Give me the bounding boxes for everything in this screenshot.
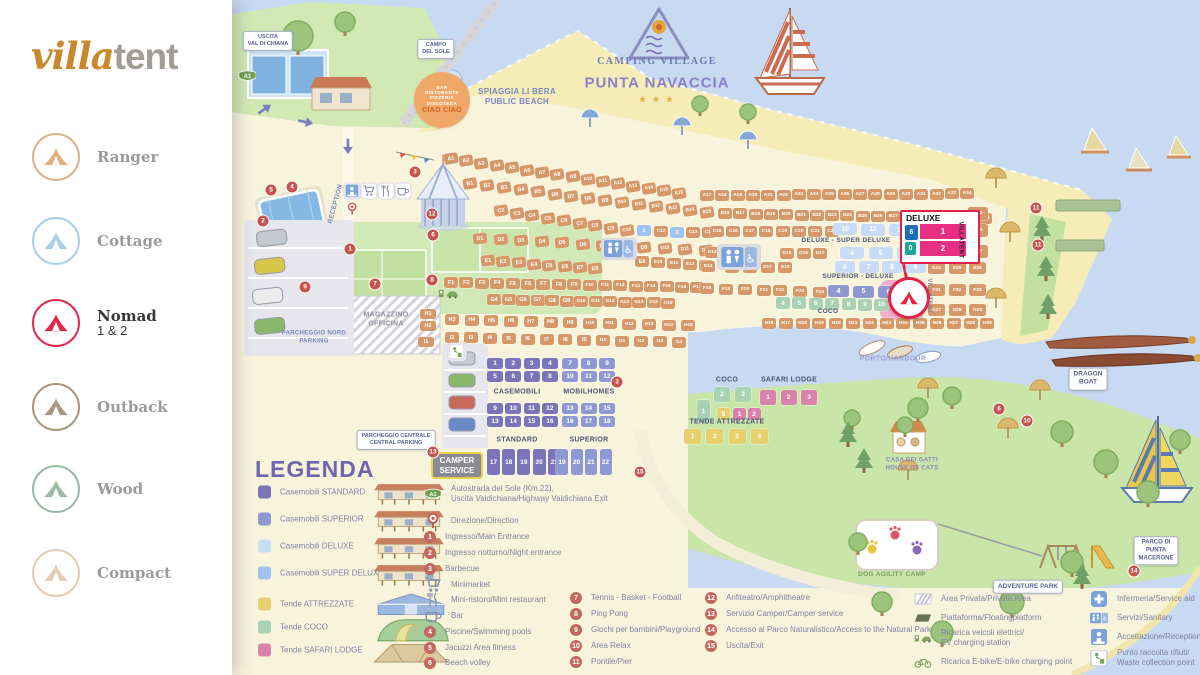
pitch-tile-H12: H12 — [622, 319, 636, 330]
pitch-tile-I6: I6 — [521, 334, 535, 345]
pitch-tile-F11: F11 — [598, 280, 612, 291]
pitch-tile-B22: B22 — [810, 210, 824, 221]
pitch-tile-F16: F16 — [675, 282, 689, 293]
callout-tile-blue: 6 — [905, 225, 918, 240]
pitch-tile-4: 4 — [542, 358, 558, 369]
pitch-tile-C21: C21 — [808, 226, 822, 237]
legend-number-6: 6 — [424, 657, 436, 669]
legend-number-9: 9 — [570, 624, 582, 636]
legend-number-15: 15 — [705, 640, 717, 652]
pitch-tile-A31: A31 — [914, 189, 928, 200]
tent-icon — [32, 383, 80, 431]
pitch-tile-20: 20 — [571, 449, 583, 475]
pitch-tile-5: 5 — [792, 297, 806, 309]
pitch-tile-H25: H25 — [913, 318, 927, 329]
pitch-tile-H11: H11 — [603, 318, 617, 329]
pitch-tile-B21: B21 — [795, 210, 809, 221]
villatent-logo: villatent — [31, 34, 177, 78]
pitch-tile-8: 8 — [882, 261, 902, 273]
legend-number-3: 3 — [424, 563, 436, 575]
pitch-tile-2: 2 — [781, 390, 797, 405]
pitch-tile-1: 1 — [487, 358, 503, 369]
dragon-boat-sign: DRAGON BOAT — [1069, 368, 1108, 391]
legend-label: Uscita/Exit — [726, 641, 764, 651]
legend-item: 4Piscine/Swimming pools — [424, 626, 531, 638]
sidebar-item-nomad[interactable]: Nomad1 & 2 — [32, 299, 157, 347]
legend-item: Infermeria/Service aid — [1090, 591, 1195, 607]
pitch-tile-9: 9 — [858, 299, 872, 311]
cart-icon — [362, 184, 377, 199]
pitch-tile-B2: B2 — [479, 179, 495, 192]
pitch-tile-H6: H6 — [504, 316, 518, 327]
pitch-tile-9: 9 — [487, 403, 503, 414]
pitch-tile-6: 6 — [835, 261, 855, 273]
pitch-tile-B1: B1 — [462, 177, 478, 190]
pitch-tile-B19: B19 — [764, 209, 778, 220]
parked-car — [256, 229, 287, 247]
tree-icon — [1137, 481, 1159, 503]
pitch-tile-F9: F9 — [567, 279, 581, 290]
legend-label: Beach volley — [445, 658, 490, 668]
pitch-tile-E18: E18 — [778, 262, 792, 273]
legend-label: Servizi/Sanitary — [1117, 613, 1173, 623]
pitch-tile-18: 18 — [502, 449, 515, 475]
pitch-tile-D6: D6 — [575, 238, 590, 251]
platform-icon — [914, 610, 932, 626]
legend-color-swatch — [258, 621, 271, 634]
pitch-tile-F3: F3 — [475, 278, 489, 289]
legend-label: Direzione/Direction — [451, 516, 519, 526]
legend-number-10: 10 — [570, 640, 582, 652]
pitch-tile-18: 18 — [599, 416, 615, 427]
pitch-tile-A32: A32 — [930, 189, 944, 200]
pitch-tile-F32: F32 — [949, 284, 966, 296]
legend-label: Minimarket — [451, 580, 490, 590]
pitch-tile-5: 5 — [869, 247, 893, 259]
pitch-tile-E10: E10 — [651, 257, 665, 268]
pitch-tile-F13: F13 — [629, 281, 643, 292]
pitch-tile-C7: C7 — [572, 216, 588, 229]
pitch-tile-A3: A3 — [474, 157, 490, 170]
legend-title: LEGENDA — [255, 456, 374, 483]
legend-swatch-row: Casemobili DELUXE — [258, 540, 354, 553]
villatent-map-page: villatent RangerCottageNomad1 & 2Outback… — [0, 0, 1200, 675]
bubble-line: DISCOTECA — [427, 101, 458, 106]
legend-label: Ricarica veicoli elettrici/ EV charging … — [941, 628, 1024, 648]
pitch-tile-A30: A30 — [899, 189, 913, 200]
campo-del-sole-sign: CAMPO DEL SOLE — [417, 39, 454, 59]
pitch-tile-F2: F2 — [459, 277, 473, 288]
logo-villa: villa — [31, 34, 114, 78]
tree-icon — [943, 387, 961, 405]
pitch-tile-B7: B7 — [564, 190, 580, 203]
pitch-tile-I4: I4 — [483, 333, 497, 344]
map-marker-14: 14 — [1128, 565, 1141, 578]
pitch-tile-H29: H29 — [980, 318, 994, 329]
legend-item: A1Autostrada del Sole (Km.22), Uscita Va… — [424, 484, 608, 504]
pitch-tile-D16: D16 — [797, 248, 811, 259]
pitch-tile-H28: H28 — [964, 318, 978, 329]
legend-item: 5Jacuzzi Area fitness — [424, 642, 516, 654]
sidebar-item-ranger[interactable]: Ranger — [32, 133, 158, 181]
pitch-tile-4: 4 — [776, 297, 790, 309]
north-parking-label: PARCHEGGIO NORD PARKING — [282, 331, 346, 346]
pitch-tile-A11: A11 — [595, 175, 611, 188]
fork-icon — [424, 592, 442, 608]
legend-label: Piscine/Swimming pools — [445, 627, 531, 637]
pitch-tile-C13: C13 — [686, 227, 700, 238]
pitch-tile-E6: E6 — [557, 260, 572, 273]
pitch-tile-I11: I11 — [615, 336, 629, 347]
legend-label: Accesso al Parco Naturalistico/Access to… — [726, 625, 931, 635]
pitch-tile-G14: G14 — [632, 297, 646, 308]
pitch-tile-H13: H13 — [642, 319, 656, 330]
coco-row-label: COCO — [818, 308, 839, 316]
pitch-tile-21: 21 — [585, 449, 597, 475]
pitch-tile-D13: D13 — [705, 247, 719, 258]
pitch-tile-H9: H9 — [563, 317, 577, 328]
sidebar-item-cottage[interactable]: Cottage — [32, 217, 163, 265]
pitch-tile-3: 3 — [729, 429, 746, 444]
warehouse-label: MAGAZZINO OFFICINA — [363, 311, 408, 329]
legend-label: Giochi per bambini/Playground — [591, 625, 700, 635]
standard-label: STANDARD — [496, 437, 537, 446]
cup-icon — [424, 608, 442, 624]
reception-icon — [1090, 629, 1108, 645]
pitch-tile-F23: F23 — [793, 286, 807, 297]
pitch-tile-2: 2 — [505, 358, 521, 369]
pitch-tile-F20: F20 — [738, 284, 752, 295]
pitch-tile-F7: F7 — [536, 279, 550, 290]
pitch-tile-D15: D15 — [780, 248, 794, 259]
pitch-tile-H24: H24 — [896, 318, 910, 329]
pitch-tile-D11: D11 — [677, 243, 692, 256]
pitch-tile-A34: A34 — [960, 188, 974, 199]
tree-icon — [844, 410, 860, 426]
map-marker-8: 8 — [426, 274, 439, 287]
legend-item: Mini-ristoro/Mini restaurant — [424, 592, 546, 608]
legend-label: Ricarica E-bike/E-bike charging point — [941, 657, 1072, 667]
pitch-tile-C10: C10 — [619, 224, 635, 237]
sidebar-item-label: Wood — [97, 481, 143, 498]
pitch-tile-11: 11 — [524, 403, 540, 414]
pitch-tile-H3: H3 — [445, 314, 459, 325]
pitch-tile-1: 1 — [760, 390, 776, 405]
pitch-tile-A7: A7 — [534, 166, 550, 179]
pitch-tile-C19: C19 — [776, 226, 790, 237]
tende-attrezzate-label: TENDE ATTREZZATE — [689, 419, 764, 428]
pitch-tile-A28: A28 — [868, 189, 882, 200]
tree-icon — [872, 592, 892, 612]
legend-item: Ricarica E-bike/E-bike charging point — [914, 654, 1072, 670]
pitch-tile-H23: H23 — [880, 318, 894, 329]
pitch-tile-B23: B23 — [825, 210, 839, 221]
legend-color-swatch — [258, 644, 271, 657]
pitch-tile-B24: B24 — [840, 210, 854, 221]
pitch-tile-F12: F12 — [613, 280, 627, 291]
pitch-tile-19: 19 — [556, 449, 568, 475]
svg-text:♿: ♿ — [1102, 616, 1107, 623]
tree-icon — [335, 12, 355, 32]
pitch-tile-I7: I7 — [540, 334, 554, 345]
tree-icon — [897, 417, 913, 433]
pitch-tile-E12: E12 — [683, 259, 697, 270]
legend-item: 10Area Relax — [570, 640, 631, 652]
pitch-tile-D17: D17 — [813, 248, 827, 259]
pitch-tile-F5: F5 — [506, 278, 520, 289]
pitch-tile-5: 5 — [853, 286, 874, 298]
pitch-tile-A18: A18 — [715, 190, 729, 201]
pitch-tile-I12: I12 — [634, 336, 648, 347]
sidebar-item-outback[interactable]: Outback — [32, 383, 168, 431]
pine-trunk — [1081, 584, 1084, 589]
pitch-tile-E2: E2 — [496, 255, 511, 268]
tent-icon — [32, 465, 80, 513]
pitch-tile-E1: E1 — [480, 254, 495, 267]
parked-car — [254, 257, 285, 275]
pitch-tile-F24: F24 — [813, 287, 827, 298]
pitch-tile-E11: E11 — [667, 258, 681, 269]
legend-item: 7Tennis - Basket - Football — [570, 592, 681, 604]
casemobili-label: CASEMOBILI — [494, 389, 541, 398]
deluxe-callout: DELUXE 6 0 1 2 VILLATENT — [900, 210, 980, 264]
callout-tile-teal: 0 — [905, 242, 916, 255]
legend-label: Bar — [451, 611, 463, 621]
pitch-tile-15: 15 — [524, 416, 540, 427]
sidebar-item-label: Ranger — [97, 149, 158, 166]
pitch-tile-I5: I5 — [502, 333, 516, 344]
pitch-tile-B11: B11 — [631, 198, 647, 211]
map-marker-3: 3 — [409, 166, 422, 179]
tree-icon — [1170, 430, 1190, 450]
legend-label: Jacuzzi Area fitness — [445, 643, 516, 653]
pitch-tile-9: 9 — [599, 358, 615, 369]
pitch-tile-B17: B17 — [733, 208, 747, 219]
pitch-tile-7: 7 — [859, 261, 879, 273]
pitch-tile-C6: C6 — [556, 214, 572, 227]
pitch-tile-C15: C15 — [710, 226, 724, 237]
legend-item: ♿Servizi/Sanitary — [1090, 610, 1173, 626]
pitch-tile-D3: D3 — [513, 234, 528, 247]
pitch-tile-F14: F14 — [644, 281, 658, 292]
pitch-tile-H8: H8 — [544, 317, 558, 328]
pitch-tile-A19: A19 — [731, 190, 745, 201]
entrance-building — [310, 77, 372, 110]
legend-item: 11Pontile/Pier — [570, 656, 632, 668]
legend-swatch-row: Tende COCO — [258, 621, 328, 634]
pitch-tile-15: 15 — [599, 403, 615, 414]
legend-label: Ingresso notturno/Night entrance — [445, 548, 562, 558]
pitch-tile-D5: D5 — [554, 237, 569, 250]
pitch-tile-H22: H22 — [863, 318, 877, 329]
a1-badge-icon: A1 — [236, 69, 258, 83]
pitch-tile-E9: E9 — [635, 256, 649, 267]
map-title-stars: ★ ★ ★ — [639, 95, 675, 105]
pitch-tile-F33: F33 — [969, 284, 986, 296]
legend-label: Tennis - Basket - Football — [591, 593, 681, 603]
map-marker-11: 11 — [1032, 239, 1045, 252]
pitch-tile-B20: B20 — [779, 209, 793, 220]
cup-icon — [396, 184, 411, 199]
pitch-tile-A13: A13 — [626, 180, 642, 193]
pitch-tile-A20: A20 — [746, 190, 760, 201]
pitch-tile-4: 4 — [840, 247, 864, 259]
legend-number-12: 12 — [705, 592, 717, 604]
pitch-tile-B6: B6 — [547, 187, 563, 200]
cart-icon — [424, 577, 442, 593]
pitch-tile-10: 10 — [874, 299, 888, 311]
pitch-tile-A10: A10 — [580, 173, 596, 186]
sidebar-item-compact[interactable]: Compact — [32, 549, 171, 597]
pitch-tile-H1: H1 — [420, 309, 436, 319]
pitch-tile-D10: D10 — [657, 242, 672, 255]
sidebar: villatent RangerCottageNomad1 & 2Outback… — [0, 0, 232, 675]
pitch-tile-H7: H7 — [524, 316, 538, 327]
wc-icon: ♿ — [718, 245, 760, 269]
pitch-tile-4: 4 — [828, 285, 849, 297]
map-marker-11: 11 — [1030, 202, 1043, 215]
ciao-ciao-bubble: BAR RISTORANTE PIZZERIA DISCOTECA CIAO C… — [414, 72, 470, 128]
pitch-tile-G29: G29 — [969, 304, 986, 316]
legend-swatch-row: Casemobili STANDARD — [258, 486, 365, 499]
map-marker-2: 2 — [257, 215, 270, 228]
legend-label: Mini-ristoro/Mini restaurant — [451, 595, 546, 605]
pitch-tile-7: 7 — [524, 371, 540, 382]
legend-label: Tende SAFARI LODGE — [280, 645, 363, 655]
pitch-tile-B10: B10 — [614, 196, 630, 209]
sidebar-item-sublabel: 1 & 2 — [97, 324, 157, 338]
pitch-tile-17: 17 — [487, 449, 500, 475]
pitch-tile-A25: A25 — [822, 189, 836, 200]
pitch-tile-H26: H26 — [930, 318, 944, 329]
pitch-tile-C8: C8 — [587, 219, 603, 232]
a1-icon: A1 — [424, 486, 442, 502]
pin-icon — [424, 513, 442, 529]
pitch-tile-F19: F19 — [719, 284, 733, 295]
legend-label: Area Relax — [591, 641, 631, 651]
pitch-tile-H17: H17 — [779, 318, 793, 329]
pitch-tile-G15: G15 — [647, 297, 661, 308]
legend-item: Punto raccolta rifiuti/ Waste collection… — [1090, 648, 1195, 668]
legend-label: Casemobili SUPERIOR — [280, 514, 364, 524]
map-marker-3: 3 — [611, 376, 624, 389]
pitch-tile-B18: B18 — [749, 209, 763, 220]
pitch-tile-C17: C17 — [743, 226, 757, 237]
pitch-tile-3: 3 — [524, 358, 540, 369]
pitch-tile-A33: A33 — [945, 188, 959, 199]
pitch-tile-E7: E7 — [572, 261, 587, 274]
sidebar-item-wood[interactable]: Wood — [32, 465, 143, 513]
pitch-tile-I10: I10 — [596, 335, 610, 346]
pitch-tile-I13: I13 — [653, 336, 667, 347]
map-marker-7: 7 — [369, 278, 382, 291]
pitch-tile-8: 8 — [542, 371, 558, 382]
legend-label: Piattaforma/Floatingplatform — [941, 613, 1042, 623]
legend-number-14: 14 — [705, 624, 717, 636]
tree-icon — [1094, 450, 1118, 474]
pitch-tile-B12: B12 — [648, 200, 664, 213]
pitch-tile-10: 10 — [833, 223, 857, 235]
legend-label: Pontile/Pier — [591, 657, 632, 667]
pitch-tile-F22: F22 — [773, 285, 787, 296]
pitch-tile-B27: B27 — [886, 211, 900, 222]
nomad-location-marker — [888, 277, 930, 319]
pitch-tile-A6: A6 — [519, 163, 535, 176]
pitch-tile-3: 3 — [735, 387, 751, 402]
pitch-tile-20: 20 — [533, 449, 546, 475]
pitch-tile-10: 10 — [505, 403, 521, 414]
svg-text:A1: A1 — [243, 74, 251, 80]
legend-label: Ingresso/Main Entrance — [445, 532, 530, 542]
pitch-tile-A23: A23 — [792, 189, 806, 200]
pitch-tile-G11: G11 — [589, 296, 603, 307]
pitch-tile-A29: A29 — [884, 189, 898, 200]
legend-number-1: 1 — [424, 531, 436, 543]
pitch-tile-E4: E4 — [526, 258, 541, 271]
legend-label: Ping Pong — [591, 609, 628, 619]
pitch-tile-F4: F4 — [490, 278, 504, 289]
pitch-tile-H14: H14 — [662, 320, 676, 331]
reception-icon — [345, 184, 360, 199]
pier-2 — [1056, 240, 1104, 251]
pitch-tile-G10: G10 — [574, 296, 588, 307]
legend-number-5: 5 — [424, 642, 436, 654]
legend-number-8: 8 — [570, 608, 582, 620]
legend-item: 15Uscita/Exit — [705, 640, 764, 652]
legend-swatch-row: Tende SAFARI LODGE — [258, 644, 363, 657]
legend-item: Direzione/Direction — [424, 513, 519, 529]
safari-lodge-label: SAFARI LODGE — [761, 377, 817, 386]
pitch-tile-G6: G6 — [516, 295, 530, 306]
pitch-tile-6: 6 — [505, 371, 521, 382]
pitch-tile-A26: A26 — [838, 189, 852, 200]
pitch-tile-H10: H10 — [583, 318, 597, 329]
legend-color-swatch — [258, 540, 271, 553]
pitch-tile-C4: C4 — [525, 209, 541, 222]
pitch-tile-D1: D1 — [472, 232, 487, 245]
legend-swatch-row: Casemobili SUPERIOR — [258, 513, 364, 526]
pitch-tile-2: 2 — [706, 429, 723, 444]
ev-icon — [436, 287, 460, 300]
pitch-tile-G9: G9 — [560, 296, 574, 307]
callout-title: DELUXE — [906, 213, 940, 223]
legend-number-4: 4 — [424, 626, 436, 638]
pitch-tile-F18: F18 — [700, 283, 714, 294]
map-marker-9: 9 — [299, 281, 312, 294]
legend-number-13: 13 — [705, 608, 717, 620]
tree-icon — [849, 533, 867, 551]
pitch-tile-I2: I2 — [445, 332, 459, 343]
parked-car — [449, 396, 475, 409]
pitch-tile-7: 7 — [562, 358, 578, 369]
legend-item: 2Ingresso notturno/Night entrance — [424, 547, 562, 559]
pitch-tile-I3: I3 — [464, 332, 478, 343]
parked-car — [449, 374, 475, 387]
pine-trunk — [863, 468, 866, 473]
dog-agility-label: DOG AGILITY CAMP — [858, 571, 926, 579]
map-marker-13: 13 — [427, 446, 440, 459]
pitch-tile-H19: H19 — [812, 318, 826, 329]
bike-icon — [914, 654, 932, 670]
tree-icon — [692, 96, 708, 112]
pitch-tile-G4: G4 — [487, 294, 501, 305]
camper-service-sign: CAMPER SERVICE — [431, 452, 483, 479]
pitch-tile-H20: H20 — [829, 318, 843, 329]
pitch-tile-2: 2 — [714, 387, 730, 402]
pitch-tile-12: 12 — [542, 403, 558, 414]
pitch-tile-A16: A16 — [671, 186, 687, 199]
pitch-tile-F15: F15 — [660, 281, 674, 292]
